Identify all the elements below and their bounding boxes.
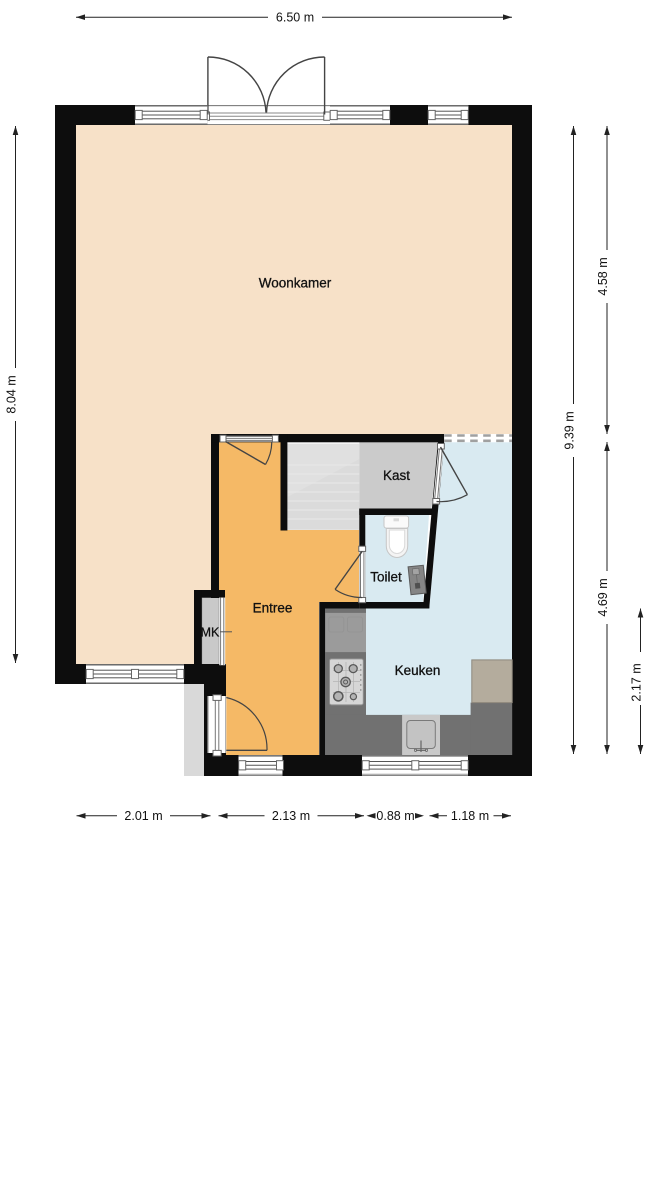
- svg-text:1.18 m: 1.18 m: [451, 809, 489, 823]
- svg-text:4.69 m: 4.69 m: [596, 578, 610, 616]
- svg-text:8.04 m: 8.04 m: [5, 375, 19, 413]
- svg-text:Woonkamer: Woonkamer: [259, 276, 332, 291]
- svg-text:2.01 m: 2.01 m: [124, 809, 162, 823]
- svg-text:2.13 m: 2.13 m: [272, 809, 310, 823]
- svg-text:Kast: Kast: [383, 468, 410, 483]
- svg-text:0.88 m: 0.88 m: [376, 809, 414, 823]
- svg-text:6.50 m: 6.50 m: [276, 11, 314, 25]
- svg-text:2.17 m: 2.17 m: [630, 663, 644, 701]
- svg-text:Entree: Entree: [253, 601, 293, 616]
- svg-text:Toilet: Toilet: [370, 570, 402, 585]
- svg-text:Keuken: Keuken: [395, 663, 441, 678]
- svg-text:MK: MK: [201, 626, 220, 640]
- svg-text:4.58 m: 4.58 m: [596, 257, 610, 295]
- svg-text:9.39 m: 9.39 m: [563, 411, 577, 449]
